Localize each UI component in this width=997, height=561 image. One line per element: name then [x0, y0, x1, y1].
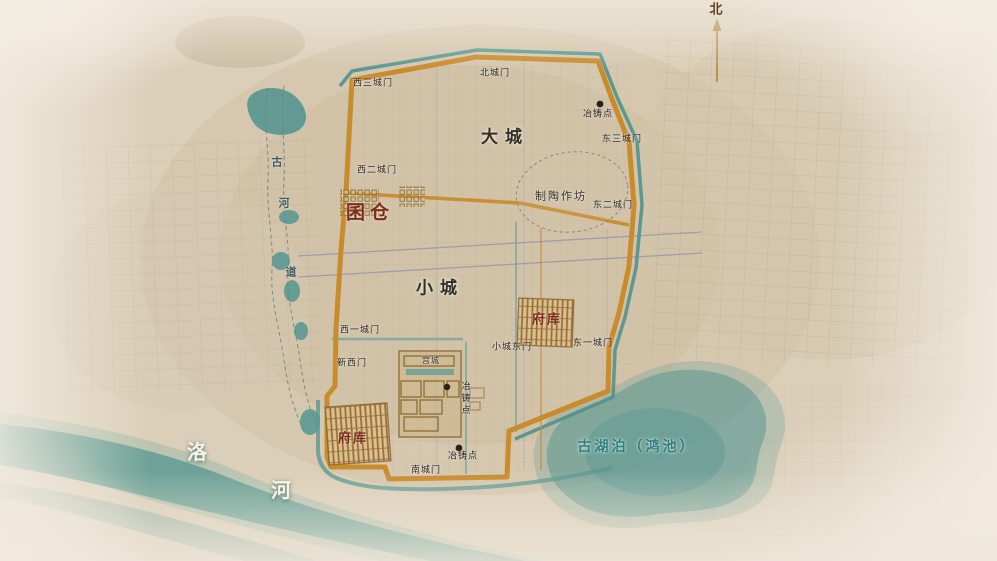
small-city-label: 小城 [416, 281, 464, 298]
gate-label-small-city-east: 小城东门 [492, 344, 532, 353]
ancient-channel-char-3: 道 [286, 267, 297, 278]
smelting-site-south-label: 冶铸点 [448, 453, 478, 462]
great-city-label: 大城 [481, 130, 529, 147]
smelting-site-ne-label: 冶铸点 [583, 111, 613, 120]
archaeological-site-map: 北 大城 小城 宫城 囷仓 府库 府库 制陶作坊 冶铸点 冶铸点 冶铸点 西三城… [0, 0, 997, 561]
luo-river-char-2: 河 [271, 480, 291, 500]
map-canvas [0, 0, 997, 561]
gate-label-west1: 西一城门 [340, 327, 380, 336]
ancient-channel-char-2: 河 [279, 198, 290, 209]
granary-cells-east [398, 186, 425, 207]
smelting-site-center-label: 冶铸点 [460, 381, 469, 417]
gate-label-east2: 东二城门 [593, 202, 633, 211]
gate-label-west3: 西三城门 [353, 80, 393, 89]
pottery-workshop-label: 制陶作坊 [535, 191, 587, 202]
gate-label-west2: 西二城门 [357, 167, 397, 176]
luo-river-char-1: 洛 [187, 442, 207, 462]
granary-label: 囷仓 [346, 204, 394, 223]
gate-label-north: 北城门 [480, 70, 510, 79]
north-label: 北 [709, 4, 722, 17]
palace-city-label: 宫城 [422, 357, 440, 365]
ancient-channel-char-1: 古 [272, 157, 283, 168]
gate-label-new-west: 新西门 [337, 360, 367, 369]
gate-label-east1: 东一城门 [573, 340, 613, 349]
gate-label-south: 南城门 [411, 467, 441, 476]
treasury-south-label: 府库 [338, 433, 368, 446]
treasury-north-label: 府库 [532, 314, 562, 327]
urban-texture-east [647, 37, 983, 373]
ancient-lake-label: 古湖泊（鸿池） [578, 440, 697, 454]
gate-label-east3: 东三城门 [602, 136, 642, 145]
